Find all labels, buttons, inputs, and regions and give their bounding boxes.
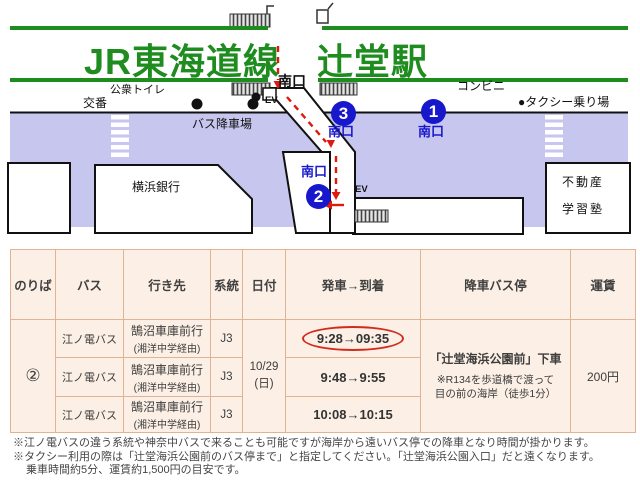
bus-timetable: のりば バス 行き先 系統 日付 発車→到着 降車バス停 運賃 ② 江ノ電バス … xyxy=(10,249,636,433)
destination-cell: 鵠沼車庫前行 (湘洋中学経由) xyxy=(124,358,211,397)
bus-company: 江ノ電バス xyxy=(56,358,124,397)
page: JR東海道線 辻堂駅 南口 公衆トイレ 交番 EV バス降車場 コンビニ ●タク… xyxy=(0,0,640,480)
footnote-line: 乗車時間約5分、運賃約1,500円の目安です。 xyxy=(26,464,600,478)
route-code: J3 xyxy=(211,320,243,358)
footnotes: ※江ノ電バスの違う系統や神奈中バスで来ることも可能ですが海岸から遠いバス停での降… xyxy=(13,437,600,478)
table-row: ② 江ノ電バス 鵠沼車庫前行 (湘洋中学経由) J3 10/29 (日) 9:2… xyxy=(11,320,636,358)
stairs-south-icon xyxy=(355,210,388,222)
header-date: 日付 xyxy=(243,250,286,320)
building-left xyxy=(8,163,70,233)
route-code: J3 xyxy=(211,358,243,397)
circled-departure-time: 9:28→09:35 xyxy=(302,326,404,351)
building-right xyxy=(546,163,630,233)
map-symbol-icon xyxy=(317,10,328,23)
header-route: 系統 xyxy=(211,250,243,320)
destination-name: 鵠沼車庫前行 xyxy=(124,398,210,415)
time-cell: 9:28→09:35 xyxy=(286,320,421,358)
header-dropoff-stop: 降車バス停 xyxy=(421,250,571,320)
label-convenience-store: コンビニ xyxy=(457,80,505,93)
label-south-exit-station: 南口 xyxy=(278,74,306,89)
rail-line-top-left xyxy=(10,26,268,30)
destination-via: (湘洋中学経由) xyxy=(124,340,210,355)
time-cell: 10:08→10:15 xyxy=(286,397,421,433)
header-platform: のりば xyxy=(11,250,56,320)
header-destination: 行き先 xyxy=(124,250,211,320)
map-title: JR東海道線 辻堂駅 xyxy=(84,33,428,85)
dropoff-stop-name: 「辻堂海浜公園前」下車 xyxy=(421,350,570,367)
time-cell: 9:48→9:55 xyxy=(286,358,421,397)
date-cell: 10/29 (日) xyxy=(243,320,286,433)
label-south-exit-1: 南口 xyxy=(418,125,444,139)
destination-via: (湘洋中学経由) xyxy=(124,379,210,394)
footbridge-mark xyxy=(267,6,274,14)
destination-cell: 鵠沼車庫前行 (湘洋中学経由) xyxy=(124,397,211,433)
fare-value: 200円 xyxy=(571,320,636,433)
label-koban: 交番 xyxy=(83,97,107,110)
footbridge-stairs-icon xyxy=(230,14,270,27)
dropoff-note: ※R134を歩道橋で渡って 目の前の海岸（徒歩1分） xyxy=(421,374,570,401)
rail-line-top-right xyxy=(322,26,628,30)
bus-stop-dot-left-icon xyxy=(192,99,203,110)
header-bus: バス xyxy=(56,250,124,320)
station-map: JR東海道線 辻堂駅 南口 公衆トイレ 交番 EV バス降車場 コンビニ ●タク… xyxy=(0,0,640,238)
label-taxi-stand: ●タクシー乗り場 xyxy=(518,96,609,109)
label-south-exit-2: 南口 xyxy=(301,165,327,179)
label-cram-school: 学習塾 xyxy=(562,203,604,216)
dropoff-cell: 「辻堂海浜公園前」下車 ※R134を歩道橋で渡って 目の前の海岸（徒歩1分） xyxy=(421,320,571,433)
bus-stop-1-badge: 1 xyxy=(421,99,446,124)
bus-stop-dot-right-icon xyxy=(248,99,259,110)
bus-company: 江ノ電バス xyxy=(56,320,124,358)
date-weekday: (日) xyxy=(243,376,285,393)
header-fare: 運賃 xyxy=(571,250,636,320)
route-code: J3 xyxy=(211,397,243,433)
destination-name: 鵠沼車庫前行 xyxy=(124,361,210,378)
label-bus-dropoff: バス降車場 xyxy=(192,118,252,131)
dropoff-note-line2: 目の前の海岸（徒歩1分） xyxy=(421,388,570,402)
dropoff-note-line1: ※R134を歩道橋で渡って xyxy=(421,374,570,388)
platform-number: ② xyxy=(11,320,56,433)
table-header-row: のりば バス 行き先 系統 日付 発車→到着 降車バス停 運賃 xyxy=(11,250,636,320)
date-value: 10/29 xyxy=(243,359,285,376)
bus-company: 江ノ電バス xyxy=(56,397,124,433)
label-public-toilet: 公衆トイレ xyxy=(110,85,165,97)
map-symbol-tick xyxy=(328,3,333,9)
label-south-exit-3: 南口 xyxy=(328,125,354,139)
destination-cell: 鵠沼車庫前行 (湘洋中学経由) xyxy=(124,320,211,358)
building-yokohama-bank xyxy=(95,165,252,233)
label-yokohama-bank: 横浜銀行 xyxy=(132,181,180,194)
label-elevator-bottom: EV xyxy=(355,185,368,195)
bus-stop-2-badge: 2 xyxy=(306,184,331,209)
label-real-estate: 不動産 xyxy=(562,176,604,189)
label-elevator-top: EV xyxy=(265,96,278,106)
footnote-line: ※江ノ電バスの違う系統や神奈中バスで来ることも可能ですが海岸から遠いバス停での降… xyxy=(13,437,600,451)
footnote-line: ※タクシー利用の際は「辻堂海浜公園前のバス停まで」と指定してください。「辻堂海浜… xyxy=(13,451,600,465)
bus-stop-3-badge: 3 xyxy=(331,101,356,126)
destination-via: (湘洋中学経由) xyxy=(124,416,210,431)
destination-name: 鵠沼車庫前行 xyxy=(124,322,210,339)
header-departure-arrival: 発車→到着 xyxy=(286,250,421,320)
